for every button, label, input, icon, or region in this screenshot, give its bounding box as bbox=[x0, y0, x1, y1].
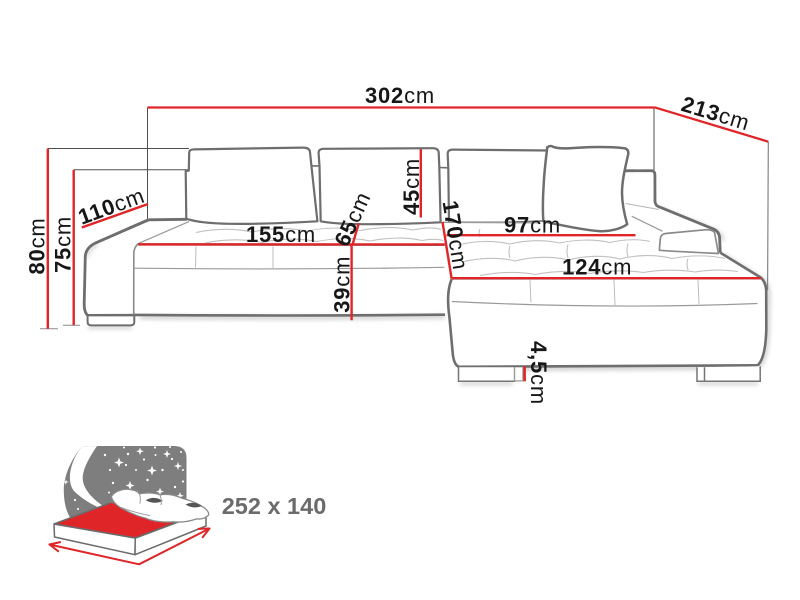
svg-text:45cm: 45cm bbox=[399, 158, 424, 215]
svg-text:75cm: 75cm bbox=[51, 216, 76, 273]
svg-text:302cm: 302cm bbox=[365, 83, 435, 108]
svg-text:80cm: 80cm bbox=[25, 217, 50, 274]
svg-text:155cm: 155cm bbox=[246, 222, 316, 247]
svg-text:252 x 140: 252 x 140 bbox=[222, 493, 327, 519]
svg-text:39cm: 39cm bbox=[329, 256, 354, 313]
svg-text:124cm: 124cm bbox=[562, 254, 632, 279]
svg-text:97cm: 97cm bbox=[504, 213, 561, 238]
svg-text:4,5cm: 4,5cm bbox=[526, 341, 551, 405]
